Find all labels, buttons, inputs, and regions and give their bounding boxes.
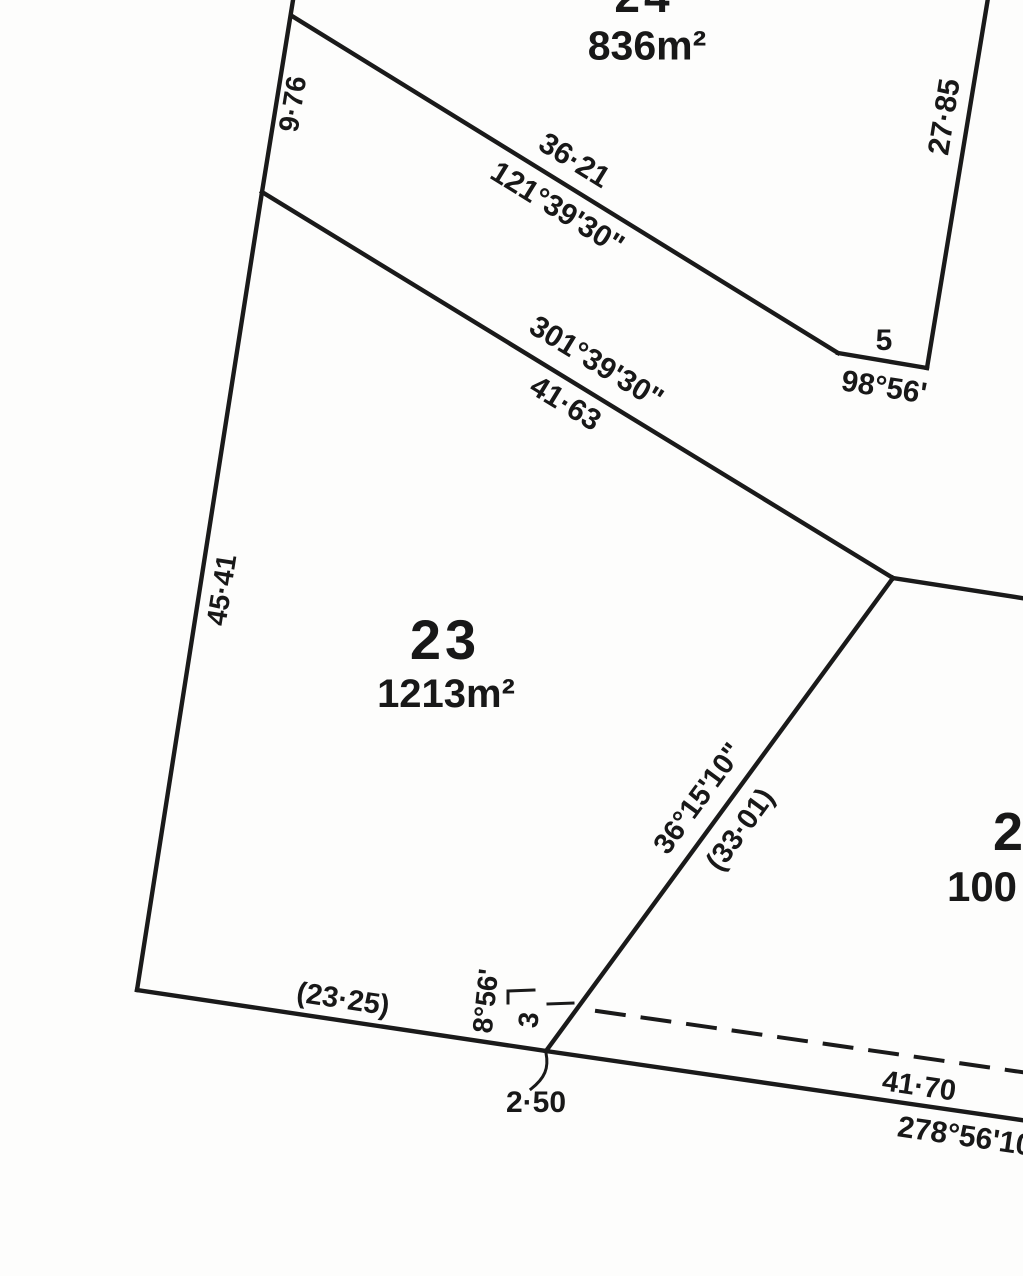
lot22-area-partial: 100 [947,866,1017,908]
lot22-number-partial: 2 [993,805,1023,859]
boundary-east-exit-line [893,578,1023,599]
length-2-50: 2·50 [506,1088,566,1118]
road-dashed-line [597,1011,1023,1073]
boundary-left-line [137,0,294,990]
splay-offset-leader-line [531,1053,547,1089]
length-5: 5 [876,326,893,356]
boundary-lot24-south-line [292,16,838,353]
bearing-8-56: 8°56' [469,967,504,1034]
boundary-lot23-east-diagonal-line [546,578,893,1051]
splay-bracket-mark [508,990,573,1004]
lot23-area: 1213m² [377,674,515,714]
survey-plan-page: 24 836m² 9·76 36·21 121°39'30" 27·85 5 9… [0,0,1023,1276]
lot24-area: 836m² [588,26,707,67]
lot24-number: 24 [614,0,673,19]
length-3: 3 [514,1011,543,1029]
lot23-number: 23 [410,612,480,668]
boundary-lot23-north-line [262,192,893,578]
boundary-lot24-east-line [927,0,989,368]
